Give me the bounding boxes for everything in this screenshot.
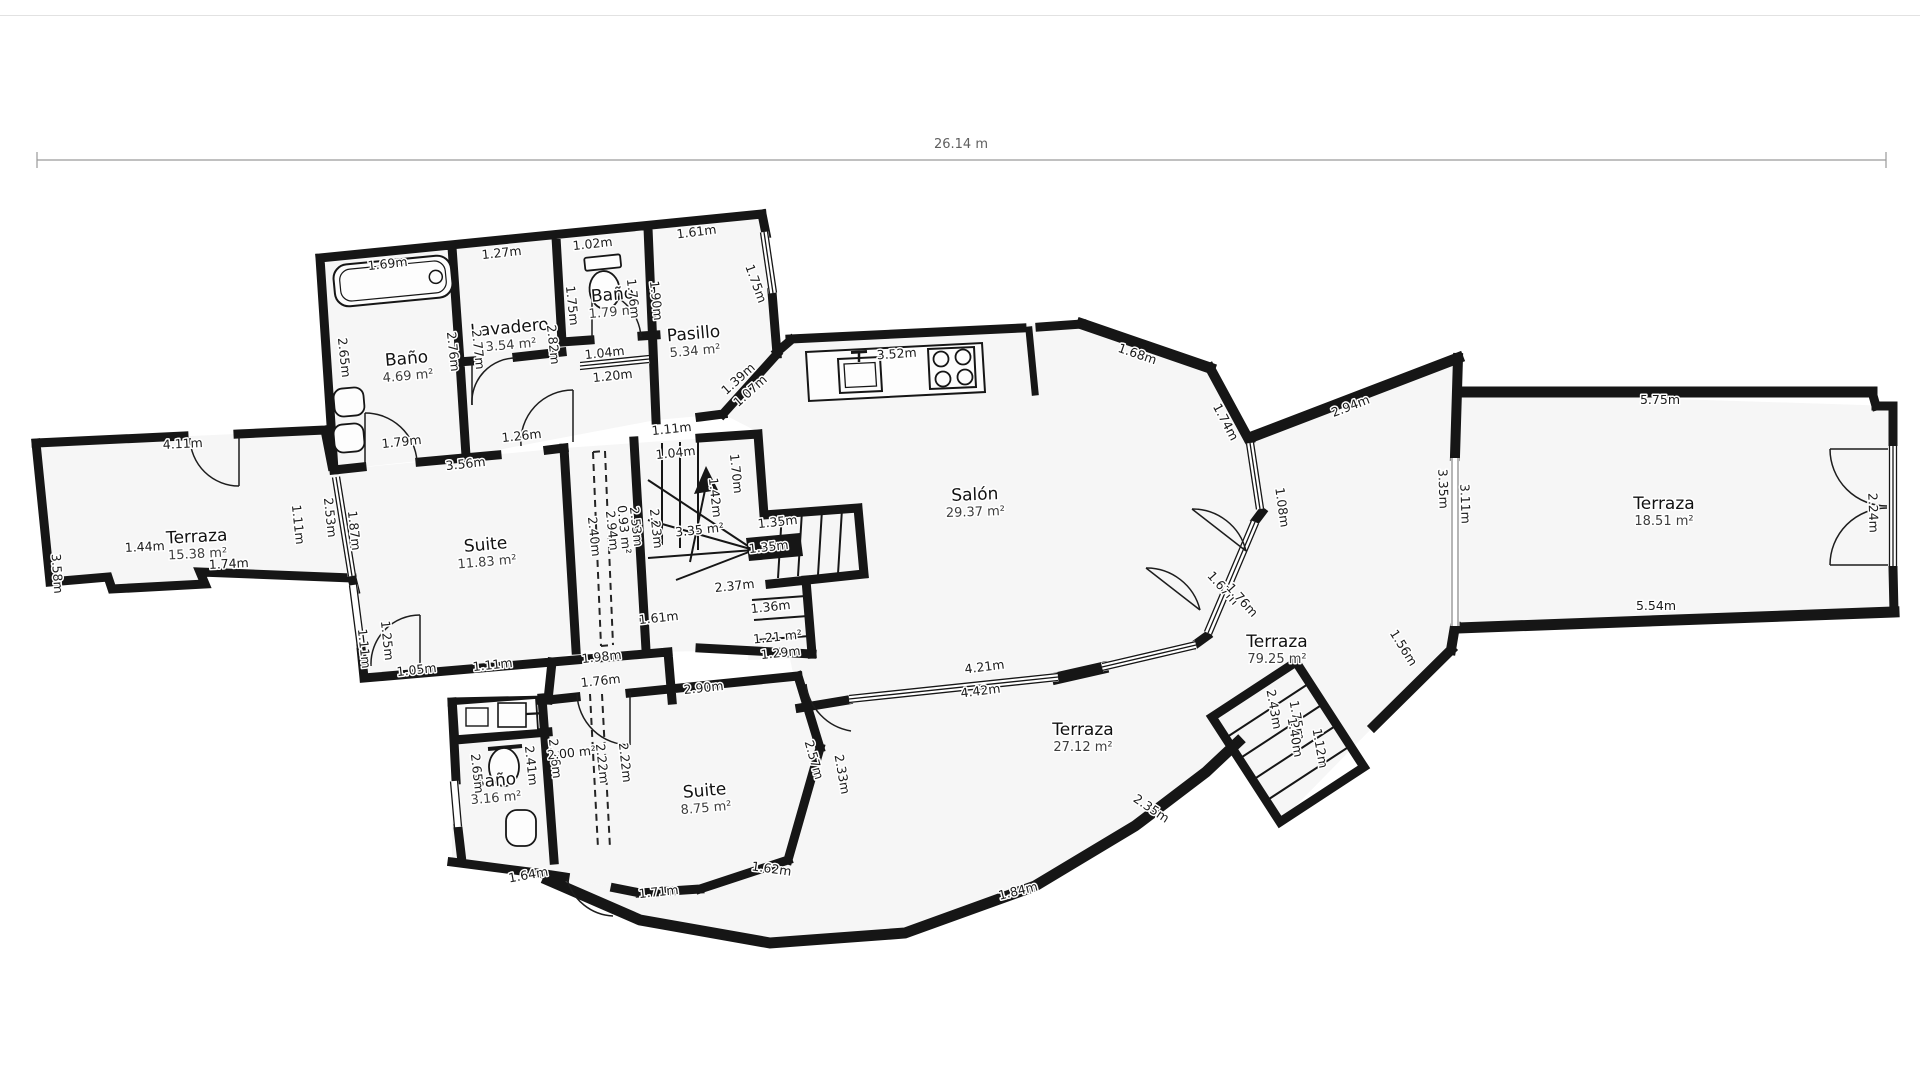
stove [928, 347, 976, 389]
measurement-label: 1.74m [208, 555, 249, 572]
measurement-label: 3.11m [1457, 484, 1473, 525]
kitchen-sink [838, 352, 882, 394]
floor-plan-canvas: 26.14 m [0, 0, 1920, 1080]
room-label: Terraza18.51 m² [1632, 494, 1694, 529]
window-terraza-door [1890, 446, 1897, 566]
measurement-label: 5.75m [1640, 392, 1680, 407]
measurement-label: 3.52m [876, 345, 917, 363]
measurement-label: 1.44m [124, 538, 165, 555]
measurement-label: 1.11m [355, 628, 374, 669]
room-label: Pasillo5.34 m² [666, 322, 722, 362]
vanity-sink-small [466, 708, 488, 726]
room-label: Salón29.37 m² [945, 484, 1005, 521]
vanity-suite8 [456, 698, 546, 736]
room-label: Terraza27.12 m² [1051, 720, 1113, 755]
overall-dimension: 26.14 m [37, 137, 1886, 168]
terraza-separator [1452, 458, 1458, 626]
room-label: Terraza79.25 m² [1245, 632, 1307, 667]
measurement-label: 2.24m [1865, 493, 1881, 534]
bidet-bano3 [506, 810, 536, 846]
measurement-label: 1.11m [651, 419, 692, 438]
measurement-label: 3.35m [1435, 469, 1451, 510]
measurement-label: 4.11m [162, 435, 203, 452]
measurement-label: 3.58m [49, 553, 67, 594]
toilet-bano4 [333, 387, 365, 418]
room-label: Suite8.75 m² [678, 779, 732, 818]
room-label: Baño4.69 m² [380, 347, 434, 386]
floor-plan-svg: 26.14 m [0, 0, 1920, 1080]
bidet-bano4 [333, 423, 365, 454]
measurement-label: 1.11m [472, 655, 513, 674]
measurement-label: 5.54m [1636, 598, 1676, 613]
overall-width-label: 26.14 m [934, 137, 988, 152]
